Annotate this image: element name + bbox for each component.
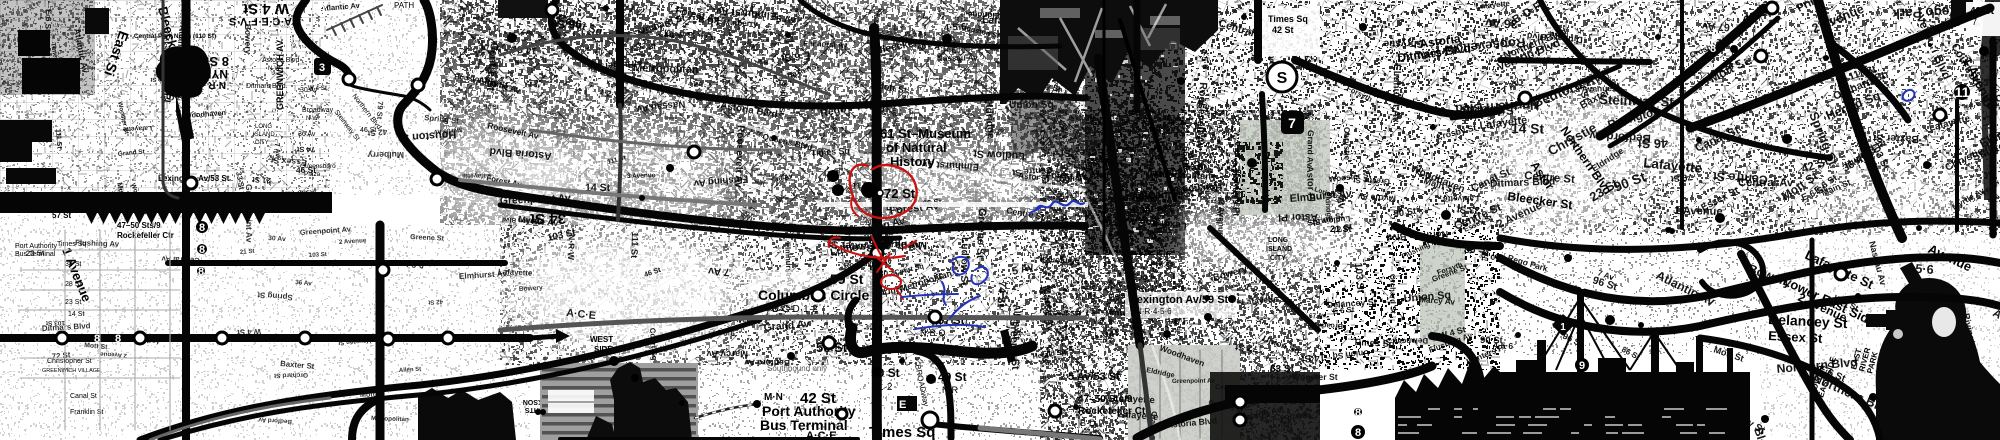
svg-text:Rockefeller Ctr: Rockefeller Ctr: [1078, 406, 1149, 417]
svg-text:GREENWICH VILLAGE: GREENWICH VILLAGE: [42, 368, 101, 374]
svg-text:Orchard St: Orchard St: [1388, 274, 1398, 314]
svg-text:WEST: WEST: [590, 335, 613, 344]
svg-text:Bus Terminal: Bus Terminal: [15, 251, 56, 258]
svg-text:N·W: N·W: [306, 116, 318, 122]
svg-text:Greenpoint Av: Greenpoint Av: [1172, 378, 1215, 385]
svg-text:14 St: 14 St: [1300, 351, 1326, 364]
svg-text:Marcy Av: Marcy Av: [706, 348, 748, 359]
svg-text:N·W: N·W: [268, 66, 280, 72]
svg-text:9: 9: [405, 55, 411, 67]
svg-text:Franklin St: Franklin St: [70, 409, 104, 416]
svg-text:Canal St: Canal St: [70, 393, 97, 400]
svg-text:72 St: 72 St: [1234, 341, 1258, 354]
svg-text:50 St: 50 St: [1185, 162, 1207, 172]
svg-text:Lafayette: Lafayette: [1443, 194, 1479, 203]
svg-text:Broadway: Broadway: [302, 107, 334, 114]
svg-text:30 Av: 30 Av: [268, 235, 286, 243]
svg-text:33 St: 33 St: [637, 41, 657, 51]
svg-text:8: 8: [198, 266, 204, 278]
svg-text:Allen St: Allen St: [399, 367, 422, 374]
svg-text:Elmhurst Av: Elmhurst Av: [1390, 64, 1402, 123]
svg-text:74 St: 74 St: [995, 281, 1008, 308]
svg-text:LONG: LONG: [1268, 237, 1289, 244]
svg-text:72 St: 72 St: [884, 186, 916, 201]
svg-text:34 St: 34 St: [65, 261, 81, 268]
svg-text:S: S: [1277, 70, 1288, 87]
svg-text:CITY: CITY: [1270, 255, 1286, 262]
svg-text:7 Av: 7 Av: [708, 265, 731, 278]
svg-text:96 St: 96 St: [553, 17, 582, 31]
svg-text:W 4 St: W 4 St: [243, 0, 289, 17]
svg-text:Times Sq: Times Sq: [1353, 336, 1395, 349]
svg-text:7: 7: [1288, 115, 1296, 131]
svg-text:Plaza: Plaza: [304, 171, 321, 178]
svg-text:PATH: PATH: [394, 1, 414, 10]
svg-text:Orchard St: Orchard St: [273, 371, 308, 379]
svg-text:1: 1: [1560, 322, 1566, 333]
svg-text:E: E: [899, 399, 906, 411]
svg-text:8: 8: [1710, 43, 1716, 55]
svg-text:8: 8: [1355, 407, 1361, 419]
svg-text:Astor Pl: Astor Pl: [1305, 166, 1317, 202]
svg-text:111 St: 111 St: [629, 232, 640, 258]
svg-text:4·5·6: 4·5·6: [1199, 48, 1211, 69]
svg-text:9: 9: [388, 42, 394, 54]
svg-text:67 Av: 67 Av: [1309, 312, 1327, 320]
svg-text:74 St: 74 St: [296, 145, 315, 154]
svg-text:Nassau Av: Nassau Av: [830, 118, 838, 150]
svg-text:Christopher St: Christopher St: [47, 358, 92, 365]
svg-text:4·5·6: 4·5·6: [943, 21, 967, 34]
svg-text:Greene St: Greene St: [974, 208, 988, 259]
svg-text:42 St: 42 St: [1272, 25, 1294, 35]
svg-text:36 Av: 36 Av: [298, 131, 316, 138]
svg-text:4·5·6: 4·5·6: [688, 82, 703, 88]
svg-text:8: 8: [94, 333, 100, 345]
svg-text:23 St: 23 St: [65, 299, 81, 306]
svg-text:N·R: N·R: [207, 79, 226, 90]
svg-text:ISLAND: ISLAND: [253, 132, 275, 138]
svg-text:Myrtle Av: Myrtle Av: [1357, 192, 1396, 204]
svg-text:79 St: 79 St: [1155, 261, 1173, 271]
svg-text:Astoria Blvd: Astoria Blvd: [262, 57, 299, 64]
svg-text:11: 11: [1955, 84, 1970, 100]
svg-text:86 St: 86 St: [662, 18, 673, 38]
svg-text:CITY: CITY: [255, 140, 269, 146]
svg-text:30 Av: 30 Av: [300, 87, 318, 94]
svg-text:103 St: 103 St: [309, 251, 327, 259]
svg-text:8: 8: [115, 333, 121, 345]
svg-text:8: 8: [1739, 55, 1745, 67]
svg-text:Central Park North (110 St): Central Park North (110 St): [134, 33, 216, 40]
svg-text:Times Sq: Times Sq: [57, 241, 86, 248]
svg-text:LONG: LONG: [255, 124, 272, 130]
svg-text:of Natural: of Natural: [886, 140, 947, 155]
svg-text:Forest Av: Forest Av: [1046, 170, 1087, 181]
svg-text:21 St: 21 St: [268, 155, 283, 162]
svg-text:Elmhurst Av: Elmhurst Av: [803, 39, 848, 50]
svg-text:3 Avenue: 3 Avenue: [627, 172, 656, 180]
svg-text:Mulberry: Mulberry: [723, 18, 758, 28]
svg-text:ISLAND: ISLAND: [1266, 246, 1292, 253]
svg-text:Grand Av: Grand Av: [1305, 130, 1316, 168]
svg-text:Allen St: Allen St: [1011, 304, 1022, 340]
svg-text:90 St: 90 St: [484, 104, 499, 111]
svg-text:8: 8: [199, 222, 205, 234]
svg-text:Mulberry: Mulberry: [367, 150, 404, 160]
svg-text:N·B·Q: N·B·Q: [920, 328, 946, 338]
svg-text:79 St: 79 St: [375, 101, 385, 120]
svg-text:33 St: 33 St: [1456, 203, 1480, 215]
svg-text:3: 3: [319, 62, 325, 74]
svg-text:Rockefeller Ctr: Rockefeller Ctr: [117, 231, 174, 240]
svg-text:8: 8: [199, 244, 205, 256]
svg-text:Lafayette: Lafayette: [462, 172, 491, 179]
svg-text:46 St: 46 St: [360, 127, 376, 134]
svg-text:E 6 St: E 6 St: [43, 9, 53, 32]
svg-text:42 St: 42 St: [428, 298, 443, 306]
svg-text:Port Authority: Port Authority: [15, 243, 58, 250]
svg-text:9: 9: [370, 35, 376, 47]
svg-text:Queensboro: Queensboro: [300, 163, 336, 170]
svg-text:Greene St: Greene St: [1353, 176, 1391, 186]
svg-text:GREENWICH AV: GREENWICH AV: [275, 40, 285, 110]
svg-text:Bowery: Bowery: [243, 24, 253, 55]
svg-text:Nassau Av: Nassau Av: [937, 53, 978, 63]
svg-text:Metropolitan: Metropolitan: [633, 62, 699, 76]
svg-text:Times Sq: Times Sq: [1268, 14, 1308, 24]
svg-text:67 Av: 67 Av: [482, 45, 499, 52]
svg-text:11: 11: [1923, 37, 1938, 53]
svg-text:Chrystie: Chrystie: [1342, 127, 1353, 161]
svg-text:9: 9: [1579, 360, 1585, 372]
svg-text:M·N: M·N: [764, 392, 783, 403]
svg-text:8: 8: [1355, 427, 1361, 439]
svg-text:B·D·F: B·D·F: [1080, 418, 1104, 428]
svg-text:N·R·W: N·R·W: [566, 234, 577, 261]
svg-text:Greene St: Greene St: [410, 232, 445, 243]
svg-text:5 Av: 5 Av: [776, 14, 797, 26]
svg-text:Ditmars Blvd: Ditmars Blvd: [246, 83, 286, 90]
svg-text:21 St: 21 St: [240, 248, 255, 256]
svg-text:36 Av: 36 Av: [1485, 16, 1518, 31]
svg-text:Southbound only: Southbound only: [767, 364, 827, 373]
svg-text:5 Av/53 St: 5 Av/53 St: [1068, 371, 1120, 383]
svg-text:E 6 St: E 6 St: [904, 29, 923, 37]
svg-text:28 St: 28 St: [65, 281, 81, 288]
svg-text:47–50 Sts/9: 47–50 Sts/9: [1078, 394, 1133, 405]
svg-text:14 St: 14 St: [68, 311, 84, 318]
svg-text:Lexington Av/59 St: Lexington Av/59 St: [1130, 294, 1229, 306]
svg-text:A·C·E·F·V·S: A·C·E·F·V·S: [229, 15, 292, 27]
svg-text:9: 9: [1580, 280, 1586, 292]
svg-text:9: 9: [319, 4, 325, 16]
svg-text:67 Av: 67 Av: [1702, 20, 1731, 33]
svg-text:61 St–Museum: 61 St–Museum: [880, 126, 971, 141]
svg-text:N·R·4·5·6: N·R·4·5·6: [1136, 307, 1172, 316]
